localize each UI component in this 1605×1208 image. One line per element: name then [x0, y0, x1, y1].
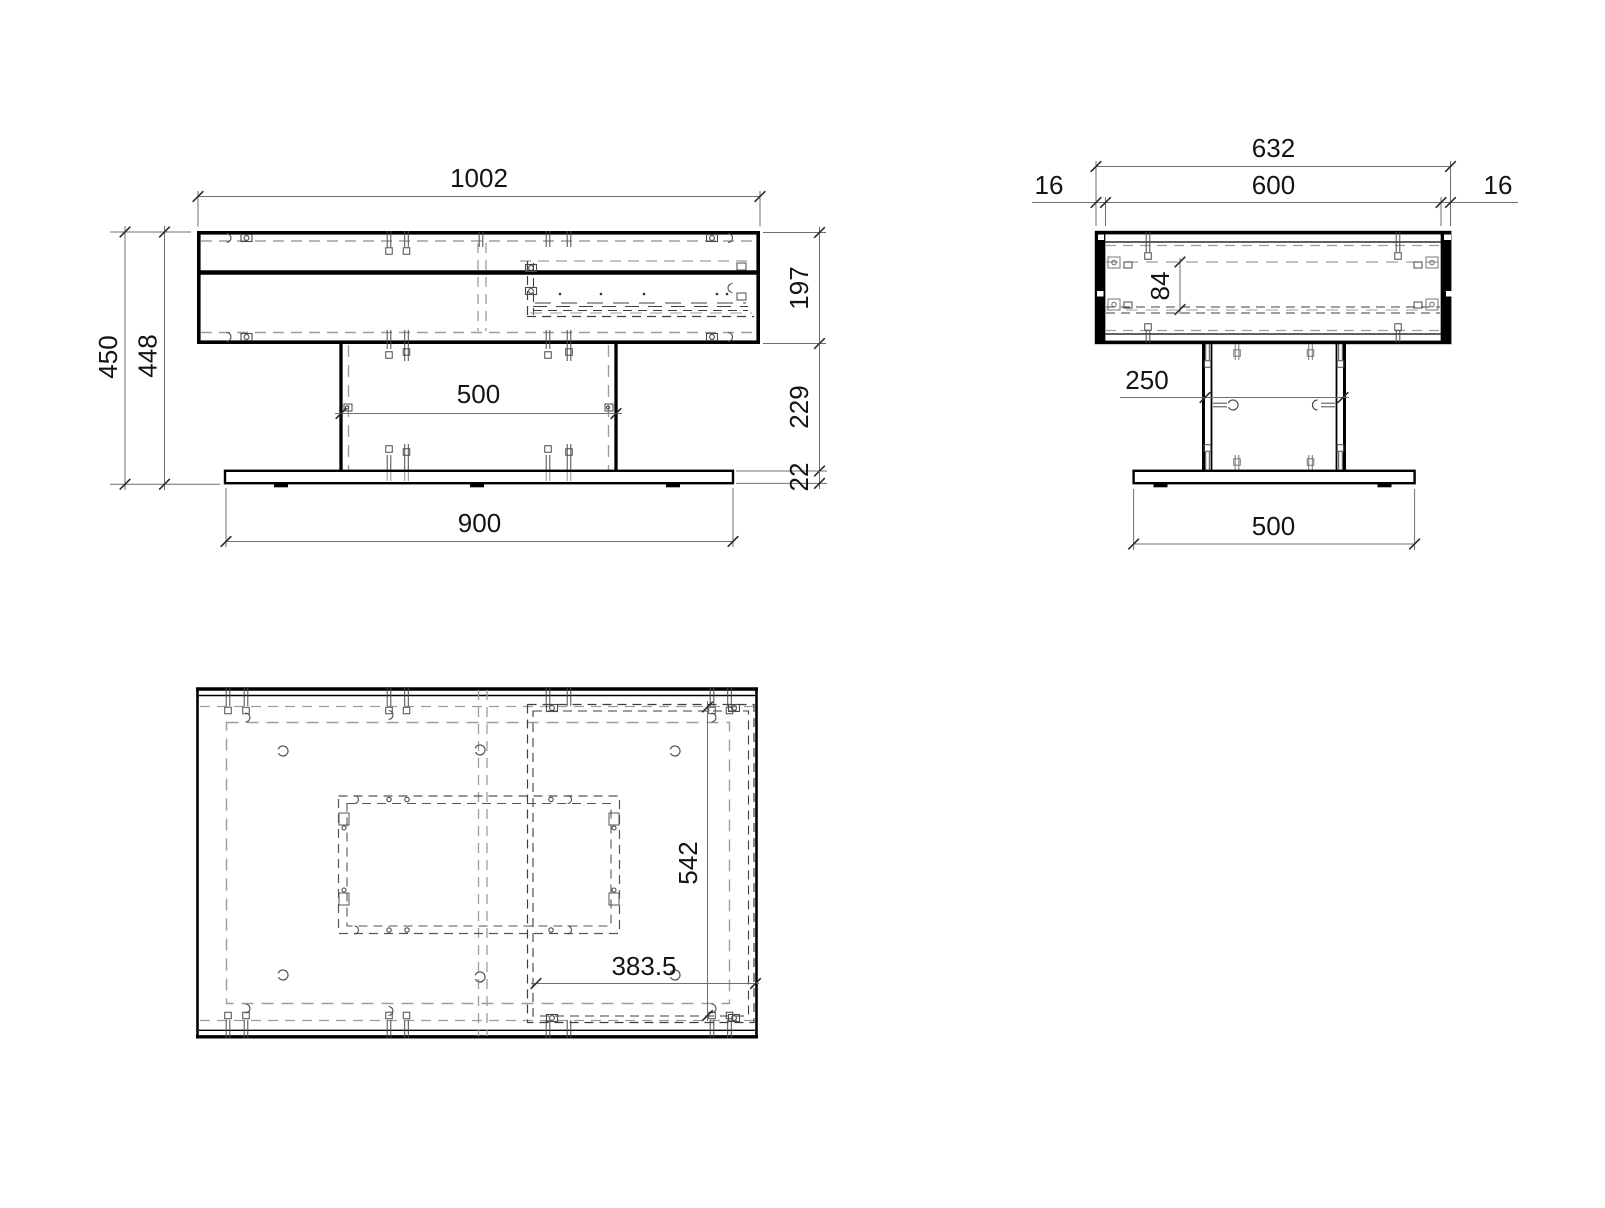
svg-text:16: 16: [1484, 170, 1513, 200]
svg-text:383.5: 383.5: [611, 951, 676, 981]
svg-text:84: 84: [1145, 272, 1175, 301]
svg-text:500: 500: [1252, 511, 1295, 541]
svg-text:229: 229: [784, 385, 814, 428]
svg-text:632: 632: [1252, 133, 1295, 163]
svg-text:16: 16: [1035, 170, 1064, 200]
svg-text:197: 197: [784, 266, 814, 309]
svg-text:500: 500: [457, 379, 500, 409]
svg-text:448: 448: [133, 334, 163, 377]
svg-text:22: 22: [784, 463, 814, 492]
svg-text:900: 900: [458, 508, 501, 538]
svg-text:542: 542: [673, 841, 703, 884]
svg-text:450: 450: [93, 335, 123, 378]
svg-text:600: 600: [1252, 170, 1295, 200]
svg-text:250: 250: [1125, 365, 1168, 395]
svg-text:1002: 1002: [450, 163, 508, 193]
